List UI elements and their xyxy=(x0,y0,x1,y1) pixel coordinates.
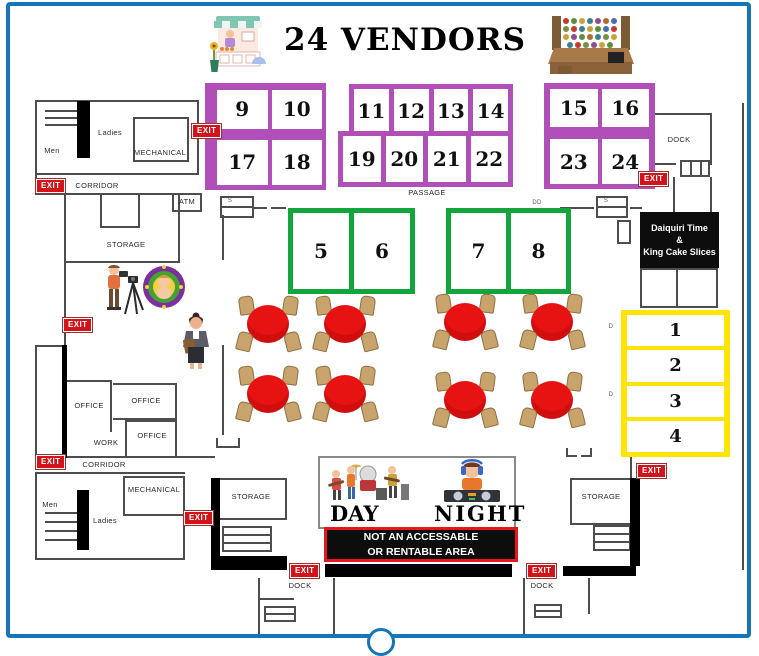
booth-11: 11 xyxy=(354,89,389,133)
wall-line xyxy=(270,526,272,552)
wall-thick xyxy=(325,564,512,577)
room-label-office-2: OFFICE xyxy=(131,396,160,405)
wall-line xyxy=(680,160,710,162)
not-accessible-banner: NOT AN ACCESSABLE OR RENTABLE AREA xyxy=(324,527,518,562)
wall-line xyxy=(110,380,112,432)
room-label-atm: ATM xyxy=(179,197,195,206)
wall-line xyxy=(640,306,718,308)
wall-line xyxy=(220,478,287,480)
wall-line xyxy=(172,193,202,195)
wall-line xyxy=(271,207,286,209)
vendor-block-7-8: 7 8 xyxy=(446,208,571,294)
label-s-right: S xyxy=(604,198,608,204)
wall-line xyxy=(125,420,127,456)
wall-line xyxy=(596,196,628,198)
room-label-corridor-2: CORRIDOR xyxy=(82,460,125,469)
wall-line xyxy=(35,173,199,175)
wall-line xyxy=(125,420,177,422)
wall-line xyxy=(629,220,631,244)
wall-line xyxy=(690,160,692,177)
wall-line xyxy=(220,518,287,520)
room-label-storage-3: STORAGE xyxy=(582,492,621,501)
round-table-icon xyxy=(531,381,573,419)
wall-line xyxy=(593,525,595,551)
wall-line xyxy=(593,533,631,535)
wall-line xyxy=(710,113,712,165)
room-label-mechanical-2: MECHANICAL xyxy=(128,485,180,494)
chair-icon xyxy=(567,406,586,428)
booth-18: 18 xyxy=(272,140,323,185)
daiquiri-line-2: & xyxy=(640,234,719,246)
wall-line xyxy=(593,541,631,543)
round-table-icon xyxy=(247,375,289,413)
booth-5: 5 xyxy=(293,213,349,289)
wall-line xyxy=(100,195,102,228)
booth-21: 21 xyxy=(428,136,466,182)
chair-icon xyxy=(519,328,538,350)
booth-10: 10 xyxy=(272,90,323,129)
wall-line xyxy=(45,530,78,532)
wall-line xyxy=(570,478,572,525)
booth-9: 9 xyxy=(217,90,268,129)
wall-line xyxy=(523,578,525,634)
wall-line xyxy=(581,455,592,457)
room-label-storage: STORAGE xyxy=(107,240,146,249)
wall-line xyxy=(220,216,254,218)
wall-line xyxy=(680,160,682,177)
exit-sign-7: EXIT xyxy=(290,564,319,578)
booth-12: 12 xyxy=(394,89,429,133)
round-table-icon xyxy=(324,375,366,413)
daiquiri-line-3: King Cake Slices xyxy=(640,246,719,258)
wall-line xyxy=(708,160,710,177)
wall-line xyxy=(264,613,296,615)
round-table-icon xyxy=(444,303,486,341)
wall-line xyxy=(35,100,199,102)
room-label-ladies: Ladies xyxy=(98,128,122,137)
booth-8: 8 xyxy=(511,213,566,289)
dining-table-set xyxy=(433,294,497,352)
exit-sign-2: EXIT xyxy=(36,179,65,193)
live-band-illustration xyxy=(324,458,410,506)
wall-line xyxy=(596,216,628,218)
wall-line xyxy=(617,220,619,244)
booth-23: 23 xyxy=(550,139,598,184)
wall-line xyxy=(566,455,577,457)
wall-line xyxy=(742,103,744,570)
wall-thick xyxy=(77,101,90,158)
vendor-block-5-6: 5 6 xyxy=(288,208,415,294)
event-coordinator-illustration xyxy=(176,312,216,370)
booth-22: 22 xyxy=(471,136,509,182)
wall-line xyxy=(45,110,77,112)
wall-line xyxy=(187,117,189,162)
wall-line xyxy=(673,177,675,212)
round-table-icon xyxy=(247,305,289,343)
wall-line xyxy=(45,124,77,126)
dining-table-set xyxy=(236,366,300,424)
wall-line xyxy=(123,476,183,478)
exit-sign-1: EXIT xyxy=(192,124,221,138)
wall-line xyxy=(220,196,254,198)
wall-line xyxy=(222,345,224,435)
wall-line xyxy=(596,206,628,208)
wall-line xyxy=(588,578,590,614)
banner-line-1: NOT AN ACCESSABLE xyxy=(327,530,515,544)
wall-line xyxy=(133,117,189,119)
label-s-left: S xyxy=(228,198,232,204)
wall-line xyxy=(35,100,37,175)
page-title: 24 VENDORS xyxy=(284,22,526,58)
exit-sign-9: EXIT xyxy=(527,564,556,578)
wall-line xyxy=(716,268,718,308)
chair-icon xyxy=(235,400,254,422)
wall-line xyxy=(222,526,224,552)
wall-line xyxy=(264,606,296,608)
round-table-icon xyxy=(444,381,486,419)
wall-line xyxy=(45,512,78,514)
wall-line xyxy=(593,549,631,551)
wall-line xyxy=(534,616,562,618)
wall-line xyxy=(172,210,202,212)
wall-line xyxy=(676,268,678,308)
market-stall-illustration xyxy=(206,12,270,76)
exit-sign-8: EXIT xyxy=(637,464,666,478)
room-label-ladies-2: Ladies xyxy=(93,516,117,525)
wall-line xyxy=(200,193,202,212)
wall-line xyxy=(123,514,183,516)
booth-7: 7 xyxy=(451,213,506,289)
wall-line xyxy=(264,620,296,622)
night-label: NIGHT xyxy=(434,501,526,526)
room-label-office-3: OFFICE xyxy=(137,431,166,440)
wall-line xyxy=(258,578,260,634)
wall-line xyxy=(570,478,632,480)
room-label-office-1: OFFICE xyxy=(74,401,103,410)
chair-icon xyxy=(480,406,499,428)
wall-line xyxy=(138,195,140,228)
chair-icon xyxy=(360,330,379,352)
room-label-men: Men xyxy=(44,146,60,155)
wall-line xyxy=(222,542,272,544)
round-table-icon xyxy=(531,303,573,341)
chair-icon xyxy=(519,406,538,428)
chair-icon xyxy=(283,330,302,352)
wall-line xyxy=(35,472,185,474)
photographer-illustration xyxy=(95,262,147,318)
wall-line xyxy=(640,268,718,270)
wall-line xyxy=(216,446,228,448)
label-d-2: D xyxy=(609,392,614,398)
booth-6: 6 xyxy=(354,213,410,289)
booth-3: 3 xyxy=(627,386,724,417)
exit-sign-6: EXIT xyxy=(184,511,213,525)
wall-line xyxy=(333,578,335,634)
wall-line xyxy=(534,604,562,606)
wall-line xyxy=(648,113,710,115)
wall-line xyxy=(67,380,112,382)
dining-table-set xyxy=(313,366,377,424)
room-label-dock-br: DOCK xyxy=(531,581,554,590)
chair-icon xyxy=(360,400,379,422)
booth-4: 4 xyxy=(627,421,724,452)
wall-line xyxy=(640,268,642,308)
chair-icon xyxy=(567,328,586,350)
booth-20: 20 xyxy=(386,136,424,182)
booth-13: 13 xyxy=(434,89,469,133)
wall-thick xyxy=(563,566,636,576)
wall-line xyxy=(35,345,65,347)
wall-thick xyxy=(77,490,89,550)
wall-line xyxy=(220,206,254,208)
wall-line xyxy=(700,160,702,177)
vendor-block-11-14: 11 12 13 14 xyxy=(349,84,513,138)
wall-line xyxy=(100,226,140,228)
room-label-dock-bc: DOCK xyxy=(289,581,312,590)
room-label-mechanical: MECHANICAL xyxy=(134,148,186,157)
daiquiri-line-1: Daiquiri Time xyxy=(640,222,719,234)
room-label-dock-topright: DOCK xyxy=(668,135,691,144)
booth-19: 19 xyxy=(343,136,381,182)
chair-icon xyxy=(432,406,451,428)
chair-icon xyxy=(235,330,254,352)
wall-line xyxy=(113,383,177,385)
vendor-block-9-10-17-18: 9 10 17 18 xyxy=(205,83,326,190)
wall-line xyxy=(222,550,272,552)
wall-line xyxy=(617,242,631,244)
chair-icon xyxy=(480,328,499,350)
wall-line xyxy=(133,160,189,162)
booth-14: 14 xyxy=(473,89,508,133)
wall-line xyxy=(710,177,712,212)
king-cake-baby-logo xyxy=(142,262,186,312)
wall-line xyxy=(45,539,78,541)
wall-line xyxy=(222,215,224,260)
round-table-icon xyxy=(324,305,366,343)
dining-table-set xyxy=(313,296,377,354)
dining-table-set xyxy=(520,372,584,430)
wall-line xyxy=(228,446,240,448)
room-label-corridor: CORRIDOR xyxy=(75,181,118,190)
vendor-goods-table-illustration xyxy=(548,10,634,76)
booth-2: 2 xyxy=(627,350,724,381)
label-dd: DD xyxy=(532,200,541,206)
wall-line xyxy=(35,193,175,195)
wall-line xyxy=(123,476,125,516)
booth-17: 17 xyxy=(217,140,268,185)
vendor-block-1-4: 1 2 3 4 xyxy=(621,310,730,457)
wall-line xyxy=(35,345,37,460)
room-label-work: WORK xyxy=(94,438,119,447)
booth-1: 1 xyxy=(627,315,724,346)
booth-16: 16 xyxy=(602,89,650,127)
wall-thick xyxy=(211,556,287,570)
room-label-passage: PASSAGE xyxy=(408,188,445,197)
banner-line-2: OR RENTABLE AREA xyxy=(327,545,515,559)
chair-icon xyxy=(312,330,331,352)
wall-line xyxy=(258,598,294,600)
exit-sign-5: EXIT xyxy=(36,455,65,469)
wall-line xyxy=(35,558,185,560)
border-handle-icon xyxy=(367,628,395,656)
chair-icon xyxy=(283,400,302,422)
wall-line xyxy=(222,526,272,528)
wall-line xyxy=(630,207,642,209)
dining-table-set xyxy=(433,372,497,430)
room-label-men-2: Men xyxy=(42,500,58,509)
wall-line xyxy=(253,207,267,209)
vendor-block-19-22: 19 20 21 22 xyxy=(338,131,513,187)
room-label-storage-2: STORAGE xyxy=(232,492,271,501)
wall-thick xyxy=(630,478,640,566)
label-d-1: D xyxy=(609,324,614,330)
wall-line xyxy=(285,478,287,520)
dining-table-set xyxy=(236,296,300,354)
wall-line xyxy=(45,117,77,119)
exit-sign-3: EXIT xyxy=(63,318,92,332)
exit-sign-4: EXIT xyxy=(639,172,668,186)
wall-line xyxy=(45,521,78,523)
wall-line xyxy=(534,610,562,612)
wall-thick xyxy=(62,345,67,458)
booth-15: 15 xyxy=(550,89,598,127)
day-label: DAY xyxy=(330,501,378,526)
wall-line xyxy=(593,525,631,527)
wall-line xyxy=(35,472,37,560)
chair-icon xyxy=(312,400,331,422)
chair-icon xyxy=(432,328,451,350)
wall-line xyxy=(222,534,272,536)
dining-table-set xyxy=(520,294,584,352)
daiquiri-sign: Daiquiri Time & King Cake Slices xyxy=(640,212,719,268)
wall-line xyxy=(680,175,710,177)
